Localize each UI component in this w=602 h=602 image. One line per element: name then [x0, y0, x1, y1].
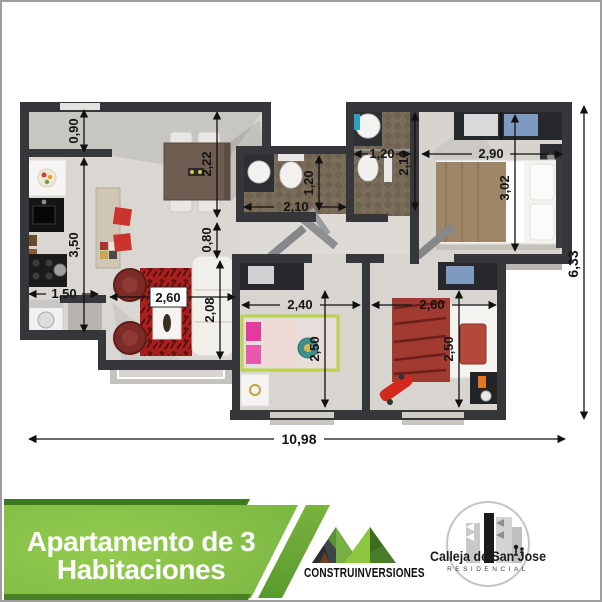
banner-bottom-stripe: [4, 594, 254, 600]
dim-bed2-w: 2,40: [287, 297, 312, 312]
banner-title: Apartamento de 3 Habitaciones: [8, 528, 274, 584]
dim-total-w: 10,98: [281, 431, 316, 447]
dim-master-d: 3,02: [497, 175, 512, 200]
calleja-name: Calleja de San Jose: [414, 549, 561, 564]
dim-living-w: 2,60: [155, 290, 180, 305]
floor-plan: 0,90 3,50 1,50 2,22 0,80 2,10 1,20 1,20 …: [2, 2, 602, 498]
dim-master-w: 2,90: [478, 146, 503, 161]
sink: [248, 161, 270, 183]
dim-bed2-d: 2,50: [307, 336, 322, 361]
dim-hall-w: 0,80: [199, 227, 214, 252]
pillow: [530, 204, 554, 240]
entry-mat: [68, 300, 102, 332]
dim-kitchen-w: 1,50: [51, 286, 76, 301]
banner-top-stripe: [4, 499, 252, 505]
pink-pillow: [246, 345, 261, 364]
dim-dining-len: 2,22: [199, 151, 214, 176]
pillow: [530, 164, 554, 200]
dim-kitchen-pass: 0,90: [66, 118, 81, 143]
dining-area: [164, 132, 230, 212]
pink-pillow: [246, 322, 261, 341]
dim-bath1-d: 1,20: [301, 170, 316, 195]
dim-kitchen-len: 3,50: [66, 232, 81, 257]
food-plate: [38, 169, 56, 187]
calleja-subtitle: RESIDENCIAL: [408, 566, 568, 573]
dim-bath2-d: 2,10: [396, 150, 411, 175]
banner-title-line1: Apartamento de 3: [8, 528, 274, 556]
dim-bath2-w: 1,20: [369, 146, 394, 161]
dim-total-h: 6,33: [565, 250, 581, 277]
mountain-m-icon: [308, 523, 412, 565]
dim-bath1-w: 2,10: [283, 199, 308, 214]
construinversiones-name: CONSTRUINVERSIONES: [304, 566, 424, 580]
bar-chair: [113, 233, 132, 252]
dim-living-d: 2,08: [202, 297, 217, 322]
calleja-logo: Calleja de San Jose RESIDENCIAL: [446, 501, 530, 587]
toilet: [280, 162, 302, 188]
pillow: [460, 324, 486, 364]
poster-canvas: 0,90 3,50 1,50 2,22 0,80 2,10 1,20 1,20 …: [0, 0, 602, 602]
bar-chair: [113, 207, 132, 226]
calleja-text: Calleja de San Jose RESIDENCIAL: [408, 549, 568, 573]
banner-title-line2: Habitaciones: [8, 556, 274, 584]
dim-bed3-d: 2,50: [441, 336, 456, 361]
dim-bed3-w: 2,60: [419, 297, 444, 312]
side-table: [241, 374, 269, 406]
